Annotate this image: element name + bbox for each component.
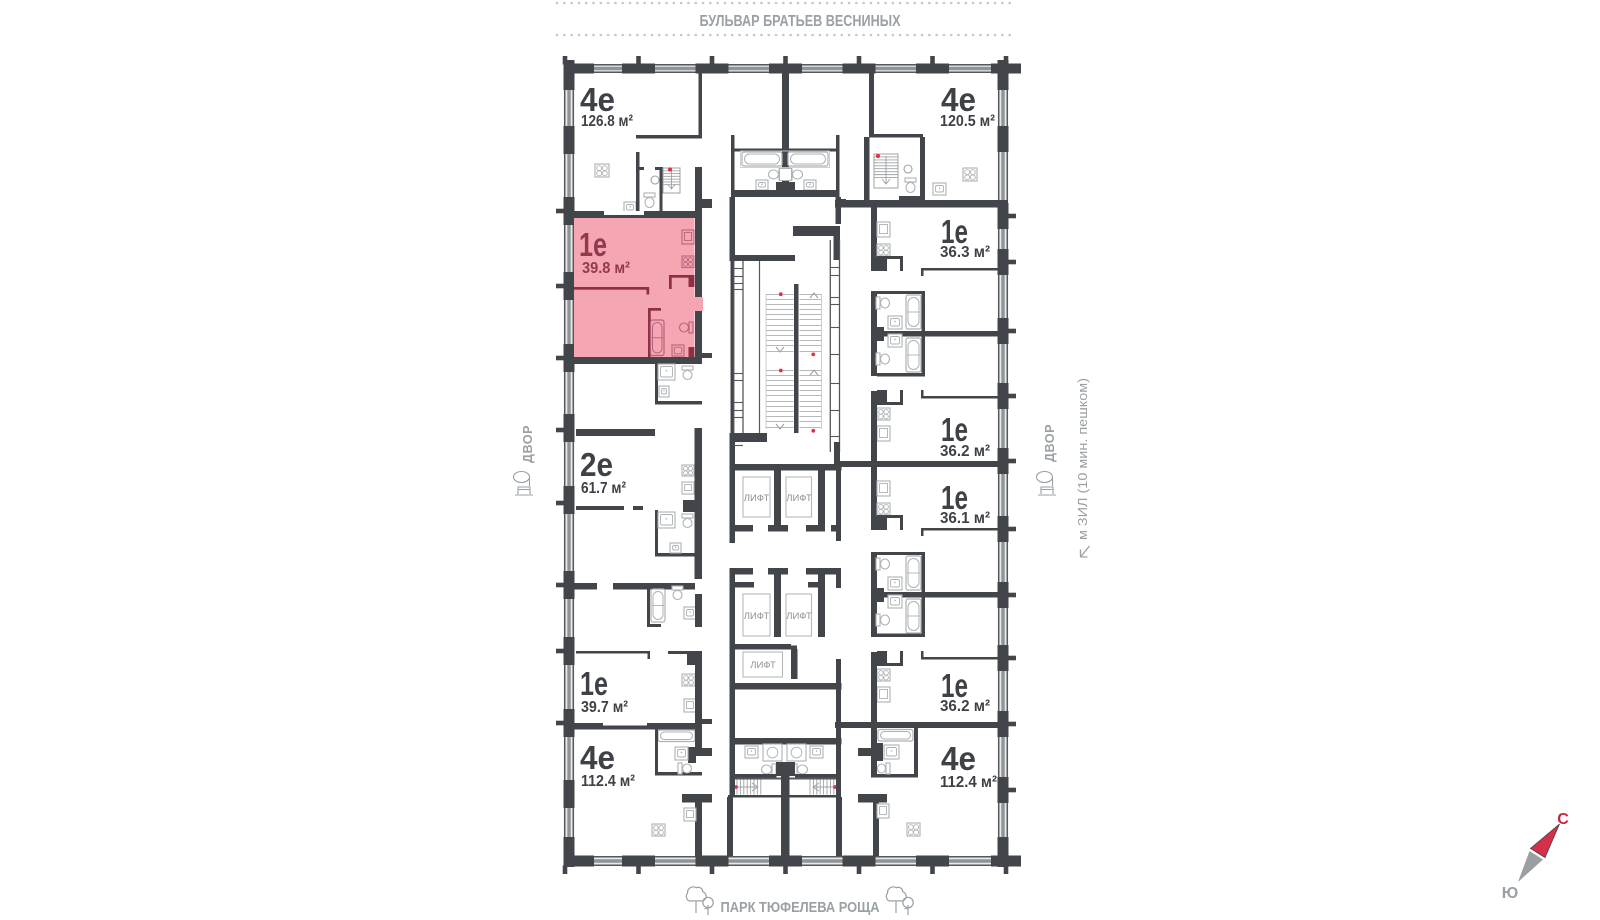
svg-text:39.8 м²: 39.8 м² (582, 260, 630, 277)
svg-text:112.4 м²: 112.4 м² (581, 773, 635, 790)
svg-text:ЛИФТ: ЛИФТ (744, 493, 770, 504)
svg-text:1е: 1е (580, 665, 608, 702)
svg-text:120.5 м²: 120.5 м² (940, 113, 995, 130)
svg-text:39.7 м²: 39.7 м² (581, 699, 628, 716)
svg-text:4е: 4е (941, 740, 976, 777)
svg-text:112.4 м²: 112.4 м² (940, 774, 997, 791)
svg-text:м ЗИЛ (10 мин. пешком): м ЗИЛ (10 мин. пешком) (1075, 378, 1090, 540)
svg-text:36.2 м²: 36.2 м² (940, 698, 990, 715)
svg-text:2е: 2е (580, 446, 613, 483)
svg-text:ЛИФТ: ЛИФТ (750, 660, 776, 671)
svg-text:ЛИФТ: ЛИФТ (786, 493, 812, 504)
svg-text:Ю: Ю (1502, 885, 1519, 902)
svg-text:ДВОР: ДВОР (520, 425, 535, 463)
svg-text:4е: 4е (580, 739, 615, 776)
svg-text:БУЛЬВАР БРАТЬЕВ ВЕСНИНЫХ: БУЛЬВАР БРАТЬЕВ ВЕСНИНЫХ (700, 13, 902, 30)
svg-text:1е: 1е (579, 226, 607, 263)
svg-text:ДВОР: ДВОР (1042, 424, 1057, 462)
svg-text:ЛИФТ: ЛИФТ (744, 611, 770, 622)
svg-text:126.8 м²: 126.8 м² (581, 113, 633, 130)
svg-text:36.2 м²: 36.2 м² (940, 443, 990, 460)
svg-text:ПАРК ТЮФЕЛЕВА РОЩА: ПАРК ТЮФЕЛЕВА РОЩА (721, 900, 880, 916)
svg-text:36.1 м²: 36.1 м² (940, 510, 990, 527)
svg-text:61.7 м²: 61.7 м² (581, 480, 626, 497)
svg-text:ЛИФТ: ЛИФТ (786, 611, 812, 622)
svg-text:36.3 м²: 36.3 м² (940, 244, 990, 261)
